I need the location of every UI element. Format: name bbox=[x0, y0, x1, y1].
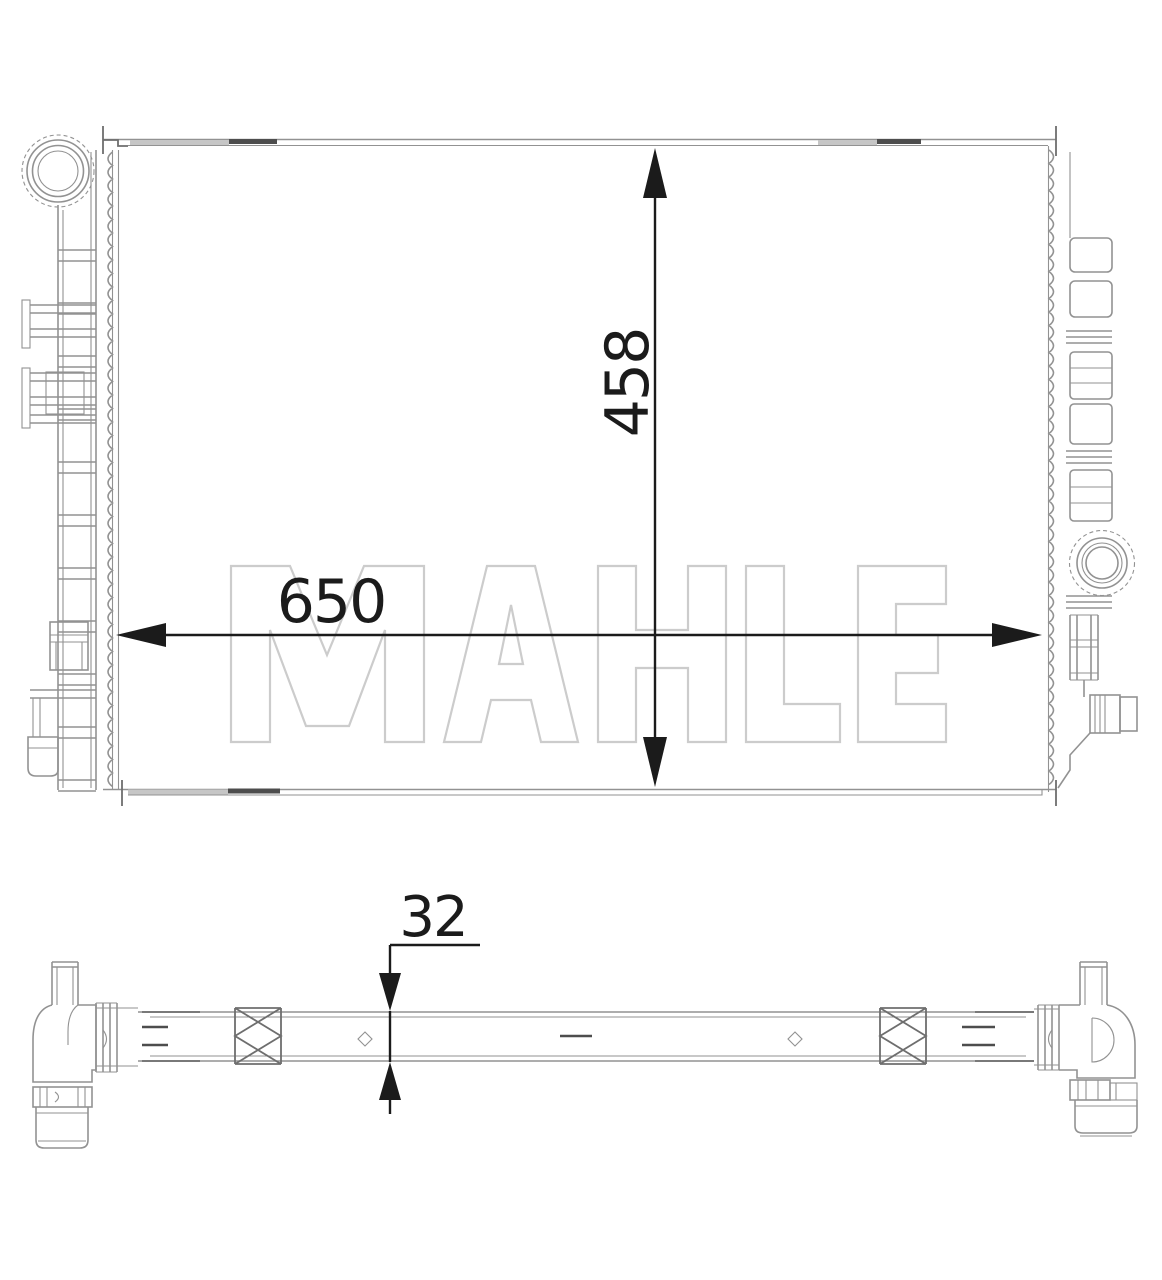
right-flange bbox=[1034, 1005, 1059, 1070]
watermark-letter-l bbox=[746, 566, 840, 742]
watermark-letter-e bbox=[858, 566, 946, 742]
arrow-down-icon bbox=[643, 737, 667, 787]
side-port bbox=[1070, 531, 1135, 596]
watermark-letter-h bbox=[598, 566, 726, 742]
right-elbow-fitting bbox=[1034, 962, 1137, 1136]
right-bracket-lower bbox=[1066, 596, 1112, 697]
dimension-depth-label: 32 bbox=[399, 885, 466, 950]
right-bracket-column bbox=[1066, 238, 1112, 521]
left-bracket-mid-upper bbox=[22, 368, 96, 428]
left-scallop-edge bbox=[108, 152, 113, 787]
dimension-width: 650 bbox=[116, 567, 1042, 647]
dimension-depth: 32 bbox=[379, 885, 480, 1114]
side-view bbox=[33, 962, 1137, 1148]
left-bracket-foot bbox=[28, 690, 96, 776]
dimension-height-label: 458 bbox=[593, 329, 663, 438]
right-tank-side bbox=[1049, 146, 1138, 792]
left-flange bbox=[96, 1003, 138, 1072]
right-hose-end bbox=[1075, 1100, 1137, 1136]
dimension-height: 458 bbox=[593, 148, 667, 787]
drain-hole-right bbox=[788, 1032, 802, 1046]
elbow-inner-arc bbox=[1092, 1018, 1114, 1062]
arrow-up-icon bbox=[379, 1062, 401, 1100]
bottom-edge bbox=[103, 780, 1056, 806]
front-view bbox=[22, 126, 1137, 806]
left-tank-side bbox=[22, 135, 119, 791]
lower-diagonal-edge bbox=[1058, 733, 1090, 788]
core-bar bbox=[138, 1008, 1034, 1064]
top-edge bbox=[103, 126, 1056, 156]
left-hose-clamp bbox=[33, 1087, 92, 1107]
left-hose-end bbox=[36, 1107, 88, 1148]
watermark-letter-a bbox=[444, 566, 578, 742]
arrow-up-icon bbox=[643, 148, 667, 198]
arrow-down-icon bbox=[379, 973, 401, 1011]
left-elbow-fitting bbox=[33, 962, 138, 1148]
ladder-rungs bbox=[58, 250, 96, 791]
drain-hole-left bbox=[358, 1032, 372, 1046]
left-bracket-upper bbox=[22, 300, 96, 348]
left-bracket-middle bbox=[50, 622, 88, 670]
arrow-right-icon bbox=[992, 623, 1042, 647]
radiator-technical-drawing: MAHLE bbox=[0, 0, 1162, 1280]
right-scallop-edge bbox=[1049, 150, 1054, 785]
arrow-left-icon bbox=[116, 623, 166, 647]
right-hose-clamp bbox=[1070, 1080, 1137, 1100]
dimension-width-label: 650 bbox=[277, 567, 386, 637]
outlet-connector bbox=[1058, 695, 1137, 788]
